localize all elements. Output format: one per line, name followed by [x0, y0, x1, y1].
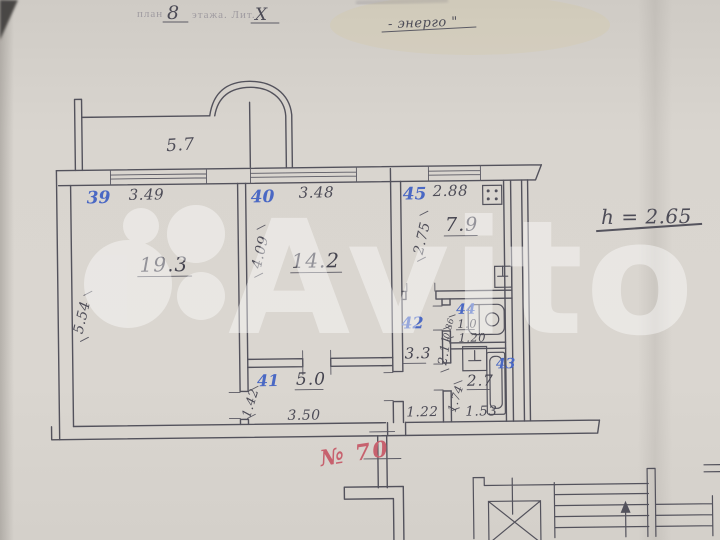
room-39-width: 3.49 [129, 185, 165, 203]
scanned-floor-plan-photo: план 8 этажа. Лит. X - энерго " 5.7 [0, 0, 720, 540]
watermark-brand-text: Avito [228, 187, 696, 371]
printed-label-floor-lit: этажа. Лит. [192, 9, 256, 21]
room-43-area: 2.7 [466, 371, 494, 389]
room-41-width: 3.50 [287, 407, 320, 423]
watermark-dot-large [84, 240, 172, 328]
cropped-printed-text [356, 0, 448, 3]
room-42-width: 1.22 [406, 404, 438, 420]
liter-value: X [253, 5, 268, 25]
floor-number: 8 [167, 2, 180, 24]
floor-plan-svg: план 8 этажа. Лит. X - энерго " 5.7 [0, 0, 720, 540]
room-41-number: 41 [257, 371, 279, 390]
balcony-dimension: 5.7 [166, 134, 196, 156]
printed-label-plan: план [137, 8, 163, 20]
watermark-dot-small [123, 208, 159, 244]
room-43-width: 1.53 [465, 403, 497, 419]
room-41-area: 5.0 [296, 369, 326, 389]
room-39-number: 39 [87, 188, 111, 208]
watermark-dot-small2 [177, 272, 225, 320]
watermark-dot-medium [167, 205, 225, 263]
